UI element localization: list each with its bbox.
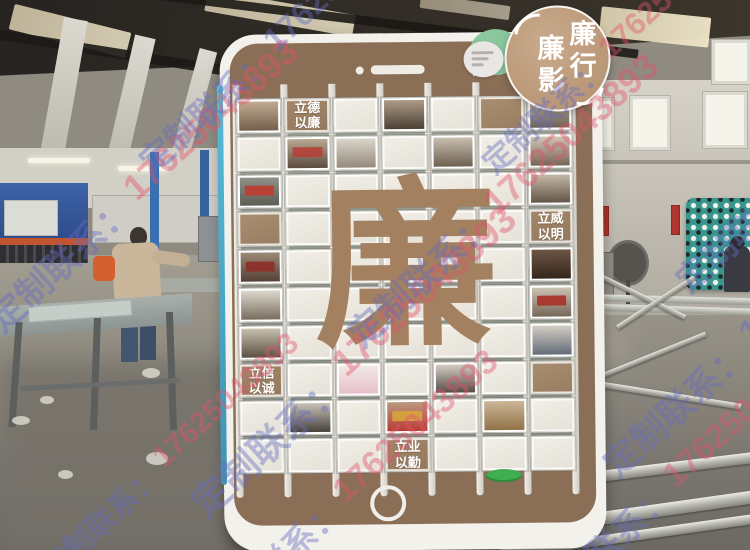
slogan-tile: 立信以诚 <box>239 363 285 398</box>
slogan-tile: 立威以明 <box>528 209 574 244</box>
photo-tile <box>527 171 573 206</box>
photo-tile <box>238 325 284 360</box>
photo-tile <box>236 98 282 133</box>
chat-bubble-white-icon <box>463 41 503 77</box>
floor-debris <box>58 470 73 479</box>
photo-accent <box>293 147 323 157</box>
phone-display-stand: 立德以廉立威以明立信以诚立业以勤 廉 廉行 廉影 <box>219 31 606 550</box>
wall-window <box>712 40 750 84</box>
photo-accent <box>245 186 275 196</box>
bubble-text-line <box>472 57 489 60</box>
logo-text-lianxing: 廉行 <box>566 19 594 83</box>
white-tile <box>433 437 479 472</box>
speaker-bar <box>371 65 425 75</box>
bubble-text-line <box>471 51 493 54</box>
white-tile <box>433 399 479 434</box>
logo-text-lianying: 廉影 <box>534 33 562 97</box>
white-tile <box>236 136 282 171</box>
photo-tile <box>288 400 334 435</box>
white-tile <box>430 96 476 131</box>
photo-tile <box>529 322 575 357</box>
white-tile <box>336 438 382 473</box>
giant-lian-character: 廉 <box>285 171 527 361</box>
logo-badge: 廉行 廉影 <box>504 5 611 112</box>
photo-tile <box>528 284 574 319</box>
photo-tile <box>237 174 283 209</box>
orange-vest <box>93 256 115 281</box>
photo-tile <box>384 399 430 434</box>
photo-accent <box>392 411 422 421</box>
white-tile <box>482 436 528 471</box>
ceiling-light <box>28 158 90 163</box>
ceiling-light <box>118 166 168 171</box>
red-banner <box>671 205 680 235</box>
white-tile <box>333 97 379 132</box>
background-person <box>724 246 750 292</box>
slogan-tile: 立业以勤 <box>385 437 431 472</box>
home-button-ring <box>370 485 406 521</box>
floor-fan <box>610 243 646 283</box>
wall-window <box>630 96 670 150</box>
brown-tile <box>478 96 524 131</box>
photo-accent <box>246 261 276 271</box>
factory-scene: 立德以廉立威以明立信以诚立业以勤 廉 廉行 廉影 定制联系： 176250438… <box>0 0 750 550</box>
slogan-text: 立业以勤 <box>392 439 423 470</box>
photo-tile <box>381 97 427 132</box>
tile-grid-zone: 立德以廉立威以明立信以诚立业以勤 廉 <box>236 95 576 473</box>
slogan-text: 立威以明 <box>535 211 566 242</box>
bubble-text-line <box>472 63 484 66</box>
photo-tile <box>481 398 527 433</box>
wall-window <box>703 92 747 148</box>
machine-base <box>0 245 88 263</box>
photo-tile <box>238 287 284 322</box>
machine-stripe <box>0 238 88 245</box>
white-tile <box>530 435 576 470</box>
floor-debris <box>40 396 54 404</box>
white-tile <box>240 439 286 474</box>
white-tile <box>288 438 334 473</box>
background-person-head <box>731 236 744 249</box>
photo-tile <box>527 133 573 168</box>
brown-tile <box>237 212 283 247</box>
photo-tile <box>528 247 574 282</box>
slogan-text: 立信以诚 <box>246 365 277 396</box>
photo-tile <box>238 250 284 285</box>
brown-tile <box>529 360 575 395</box>
floor-debris <box>142 368 160 378</box>
white-tile <box>336 400 382 435</box>
white-tile <box>239 401 285 436</box>
camera-dot <box>356 67 364 75</box>
floor-debris <box>12 416 30 425</box>
white-tile <box>530 398 576 433</box>
machine-panel <box>4 200 58 236</box>
slogan-tile: 立德以廉 <box>284 98 330 133</box>
photo-accent <box>537 296 567 306</box>
slogan-text: 立德以廉 <box>292 100 323 131</box>
floor-debris <box>146 452 168 465</box>
